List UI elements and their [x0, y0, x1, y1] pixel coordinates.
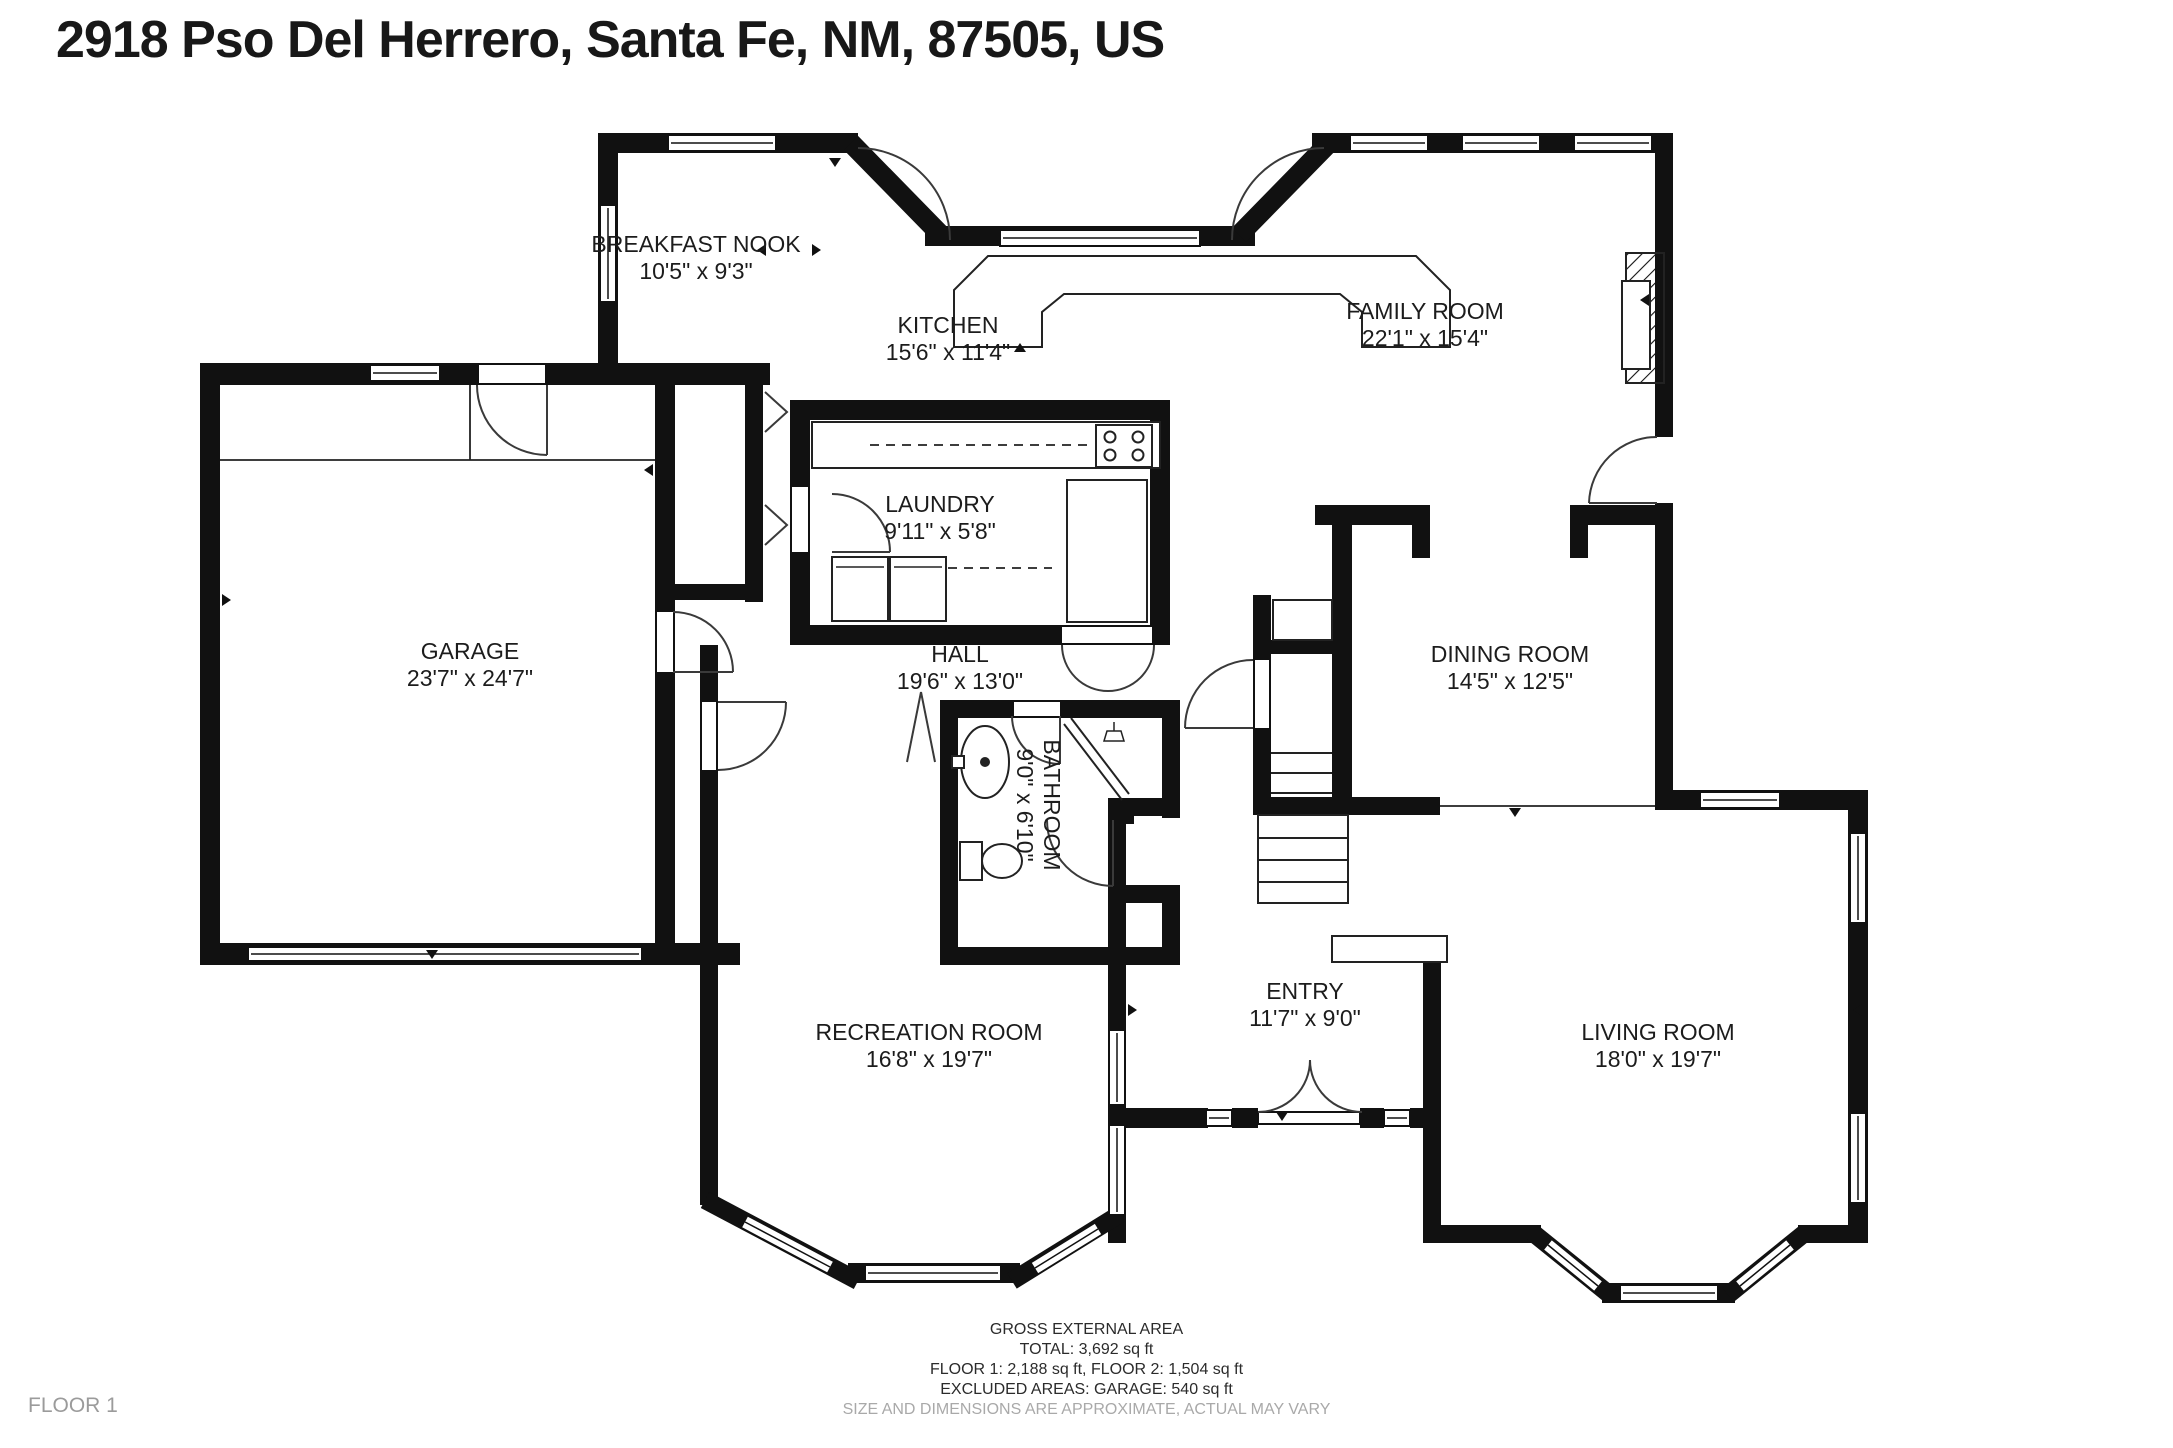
- room-dims: 23'7" x 24'7": [407, 665, 533, 692]
- stove: [1096, 425, 1152, 467]
- entry-threshold: [1258, 1112, 1360, 1124]
- room-dims: 22'1" x 15'4": [1346, 325, 1504, 352]
- floor-indicator: FLOOR 1: [28, 1394, 118, 1418]
- room-name: FAMILY ROOM: [1346, 298, 1504, 325]
- room-label-family-room: FAMILY ROOM 22'1" x 15'4": [1346, 298, 1504, 352]
- area-excluded: EXCLUDED AREAS: GARAGE: 540 sq ft: [0, 1380, 2173, 1400]
- room-dims: 14'5" x 12'5": [1431, 668, 1589, 695]
- room-name: DINING ROOM: [1431, 641, 1589, 668]
- area-summary-title: GROSS EXTERNAL AREA: [0, 1320, 2173, 1340]
- room-dims: 10'5" x 9'3": [591, 258, 800, 285]
- room-name: LAUNDRY: [884, 491, 996, 518]
- room-name: BATHROOM: [1038, 739, 1065, 870]
- address-title: 2918 Pso Del Herrero, Santa Fe, NM, 8750…: [56, 10, 1164, 70]
- room-label-laundry: LAUNDRY 9'11" x 5'8": [884, 491, 996, 545]
- entry-double-door: [1258, 1060, 1310, 1112]
- area-floors: FLOOR 1: 2,188 sq ft, FLOOR 2: 1,504 sq …: [0, 1360, 2173, 1380]
- garage-door: [248, 947, 642, 961]
- stair-closet: [1273, 600, 1332, 640]
- room-dims: 11'7" x 9'0": [1249, 1005, 1361, 1032]
- room-label-living-room: LIVING ROOM 18'0" x 19'7": [1581, 1019, 1734, 1073]
- room-name: GARAGE: [407, 638, 533, 665]
- room-label-hall: HALL 19'6" x 13'0": [897, 641, 1023, 695]
- room-name: HALL: [897, 641, 1023, 668]
- room-name: RECREATION ROOM: [815, 1019, 1042, 1046]
- bifold-door: [765, 392, 787, 432]
- room-label-kitchen: KITCHEN 15'6" x 11'4": [886, 312, 1010, 366]
- floorplan-drawing: [0, 0, 2173, 1448]
- room-label-dining-room: DINING ROOM 14'5" x 12'5": [1431, 641, 1589, 695]
- pantry-cabinet: [1067, 480, 1147, 622]
- stairs: [1258, 600, 1447, 962]
- room-name: BREAKFAST NOOK: [591, 231, 800, 258]
- entry-closet: [1332, 936, 1447, 962]
- room-dims: 15'6" x 11'4": [886, 339, 1010, 366]
- area-summary: GROSS EXTERNAL AREA TOTAL: 3,692 sq ft F…: [0, 1320, 2173, 1420]
- room-dims: 9'11" x 5'8": [884, 518, 996, 545]
- room-name: ENTRY: [1249, 978, 1361, 1005]
- room-dims: 18'0" x 19'7": [1581, 1046, 1734, 1073]
- room-label-entry: ENTRY 11'7" x 9'0": [1249, 978, 1361, 1032]
- room-name: KITCHEN: [886, 312, 1010, 339]
- toilet: [960, 842, 982, 880]
- room-label-breakfast-nook: BREAKFAST NOOK 10'5" x 9'3": [591, 231, 800, 285]
- room-label-garage: GARAGE 23'7" x 24'7": [407, 638, 533, 692]
- area-disclaimer: SIZE AND DIMENSIONS ARE APPROXIMATE, ACT…: [0, 1400, 2173, 1420]
- room-label-bathroom: BATHROOM 9'0" x 6'10": [1011, 739, 1065, 870]
- shower-head: [1104, 731, 1124, 741]
- room-label-recreation-room: RECREATION ROOM 16'8" x 19'7": [815, 1019, 1042, 1073]
- area-total: TOTAL: 3,692 sq ft: [0, 1340, 2173, 1360]
- room-dims: 16'8" x 19'7": [815, 1046, 1042, 1073]
- room-dims: 9'0" x 6'10": [1011, 739, 1038, 870]
- bifold-door: [765, 505, 787, 545]
- room-name: LIVING ROOM: [1581, 1019, 1734, 1046]
- room-dims: 19'6" x 13'0": [897, 668, 1023, 695]
- floorplan-page: 2918 Pso Del Herrero, Santa Fe, NM, 8750…: [0, 0, 2173, 1448]
